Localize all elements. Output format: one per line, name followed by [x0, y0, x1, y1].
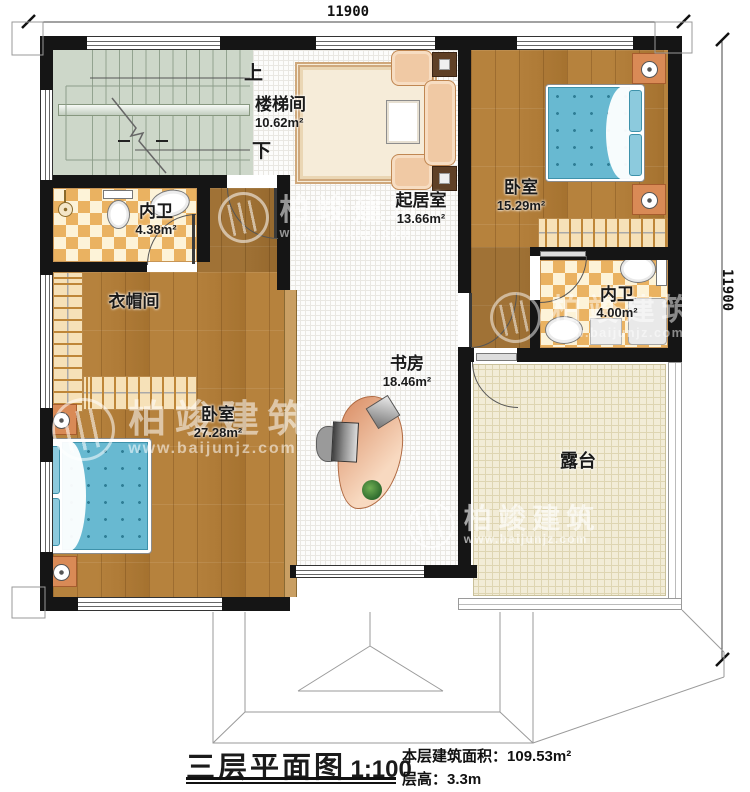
shower-head-icon	[58, 202, 73, 217]
lamp-icon	[53, 564, 70, 581]
wall-living-bedroom	[458, 36, 471, 260]
wardrobe-cloakroom-left	[53, 272, 83, 412]
window-north-living	[316, 36, 435, 50]
room-label-bedroom-left: 卧室 27.28m²	[194, 404, 242, 442]
study-partition-strip	[284, 290, 297, 597]
nightstand	[632, 53, 666, 84]
title-underline	[186, 777, 396, 780]
lamp-icon	[641, 192, 658, 209]
window-north-bedroom	[517, 36, 633, 50]
door-leaf	[476, 353, 517, 361]
sofa-right	[424, 80, 456, 166]
plan-title: 三层平面图 1:100	[186, 744, 412, 786]
window-south-study	[296, 565, 424, 578]
floor-height-info: 层高：3.3m	[402, 768, 481, 789]
wardrobe-cloakroom-bottom	[83, 376, 197, 410]
wall-east	[668, 36, 682, 362]
window-west-cloakroom	[40, 275, 53, 408]
height-value: 3.3m	[447, 771, 481, 788]
floor-area-info: 本层建筑面积：109.53m²	[402, 745, 571, 766]
door-opening	[530, 256, 540, 300]
window-south-bedroom	[78, 597, 222, 611]
nightstand	[632, 184, 666, 215]
room-label-bath-left: 内卫 4.38m²	[135, 201, 176, 239]
stair-down-label: 下	[252, 136, 271, 163]
lamp-icon	[53, 412, 70, 429]
room-label-living: 起居室 13.66m²	[396, 190, 447, 228]
side-table-top	[432, 52, 457, 77]
wardrobe-bedroom-right	[538, 218, 668, 248]
window-west-bedroom	[40, 462, 53, 552]
toilet-tank	[103, 190, 133, 199]
room-label-cloakroom: 衣帽间	[109, 291, 160, 312]
window-west-stair	[40, 90, 53, 180]
lamp-icon	[641, 61, 658, 78]
dimension-top: 11900	[327, 4, 369, 20]
stair-landing-rail	[58, 104, 250, 116]
title-underline-2	[186, 782, 396, 784]
study-desk-set	[316, 396, 416, 512]
stair-room-floor	[53, 50, 253, 175]
door-leaf	[469, 293, 472, 347]
height-label: 层高：	[402, 771, 447, 788]
room-label-bedroom-right: 卧室 15.29m²	[497, 177, 545, 215]
door-opening	[227, 175, 277, 188]
dimension-right: 11900	[719, 269, 735, 311]
terrace-parapet-south	[458, 598, 682, 610]
door-leaf	[274, 188, 277, 238]
coffee-table	[386, 100, 420, 144]
sink-basin	[545, 316, 583, 344]
computer-monitor	[331, 421, 359, 462]
room-label-terrace: 露台	[560, 450, 596, 473]
room-label-stair: 楼梯间 10.62m²	[255, 94, 306, 132]
desk-plant	[362, 480, 382, 500]
toilet-bowl	[107, 200, 130, 229]
pillow	[629, 90, 642, 132]
wall-bath-left-south	[53, 262, 147, 272]
floor-plan: 柏竣建筑www.baijunjz.com 柏竣建筑www.baijunjz.co…	[0, 0, 750, 792]
stair-up-label: 上	[244, 58, 263, 85]
area-label: 本层建筑面积：	[402, 748, 507, 765]
door-leaf	[192, 214, 195, 264]
area-value: 109.53m²	[507, 748, 571, 765]
terrace-parapet-east	[668, 362, 682, 608]
side-table-bottom	[432, 166, 457, 191]
wall-bath-left-east	[197, 188, 210, 262]
pillow	[629, 134, 642, 176]
bidet-fixture	[590, 318, 622, 345]
room-label-bath-right: 内卫 4.00m²	[596, 284, 637, 322]
window-north-stair	[87, 36, 220, 50]
room-label-study: 书房 18.46m²	[383, 353, 431, 391]
wall-hallway-east	[277, 175, 290, 290]
